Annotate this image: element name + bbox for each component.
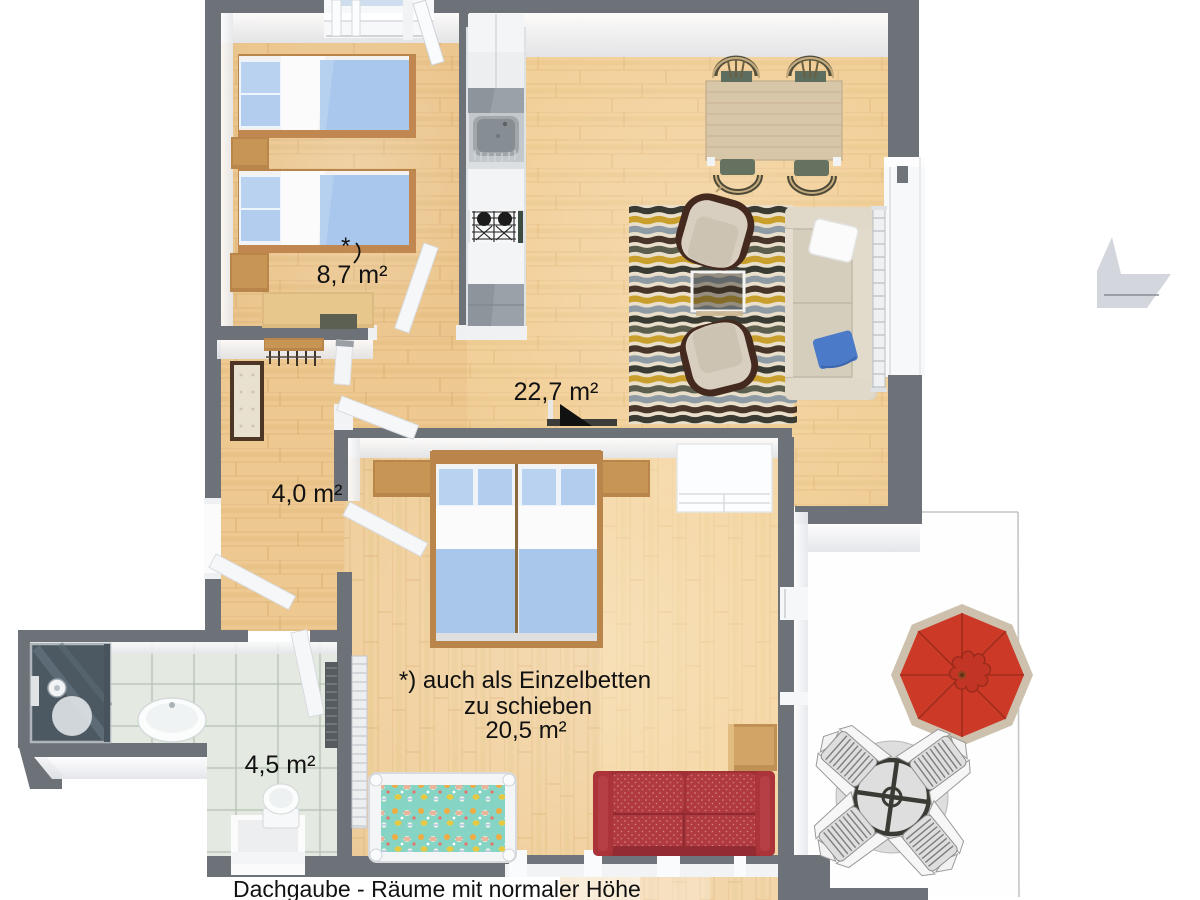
svg-text:22,7 m²: 22,7 m² — [514, 378, 599, 406]
svg-text:Dachgaube - Räume mit normaler: Dachgaube - Räume mit normaler Höhe — [233, 876, 641, 900]
svg-text:4,0 m²: 4,0 m² — [272, 480, 343, 508]
svg-text:*: * — [341, 233, 350, 260]
svg-text:zu schieben: zu schieben — [464, 693, 592, 720]
svg-text:8,7 m²: 8,7 m² — [317, 261, 388, 289]
svg-text:4,5 m²: 4,5 m² — [245, 751, 316, 779]
svg-text:20,5 m²: 20,5 m² — [485, 717, 566, 744]
svg-text:*) auch als Einzelbetten: *) auch als Einzelbetten — [399, 667, 651, 694]
